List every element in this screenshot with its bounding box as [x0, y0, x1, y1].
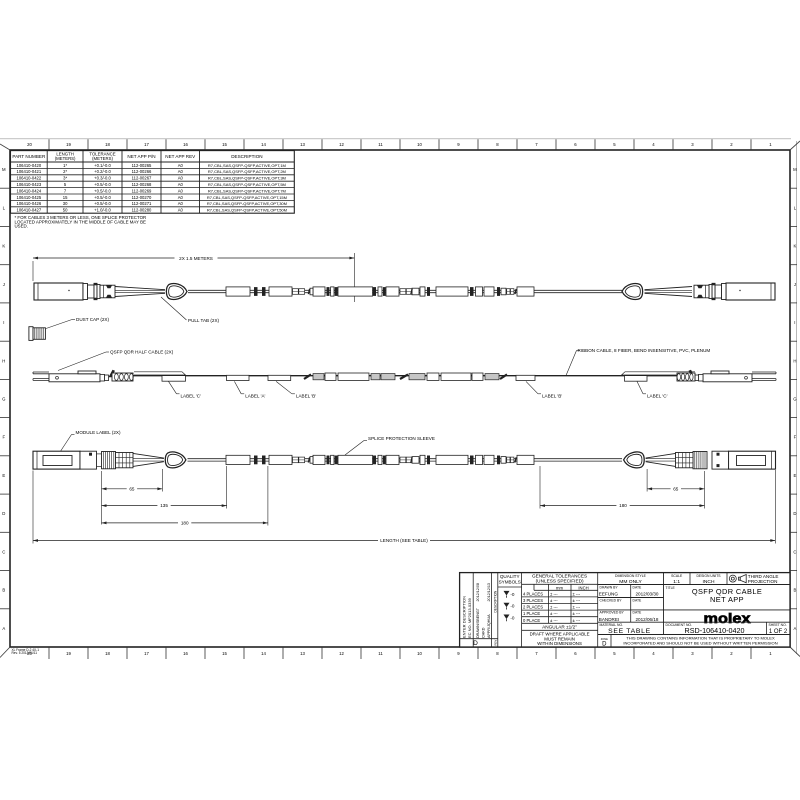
svg-text:Rev. 5 2012/01/11: Rev. 5 2012/01/11 [12, 651, 38, 655]
svg-text:WITHIN DIMENSIONS: WITHIN DIMENSIONS [537, 641, 582, 646]
svg-text:50: 50 [63, 208, 68, 213]
svg-text:NET APP P/N: NET APP P/N [127, 154, 155, 159]
svg-text:12: 12 [339, 651, 344, 656]
svg-text:19: 19 [66, 142, 71, 147]
svg-text:± ---: ± --- [550, 591, 558, 596]
svg-text:18: 18 [105, 651, 110, 656]
svg-text:MATERIAL NO.: MATERIAL NO. [600, 623, 624, 627]
svg-text:± ---: ± --- [573, 598, 581, 603]
svg-text:NET APP: NET APP [710, 595, 744, 604]
svg-text:QSFP QDR HALF CABLE (2X): QSFP QDR HALF CABLE (2X) [110, 350, 174, 355]
svg-text:2012/06/18: 2012/06/18 [636, 617, 659, 622]
svg-text:15: 15 [63, 195, 68, 200]
svg-text:DESIGN UNITS: DESIGN UNITS [696, 574, 721, 578]
svg-text:112-00269: 112-00269 [132, 188, 152, 193]
svg-text:± ---: ± --- [573, 618, 581, 623]
svg-text:11: 11 [378, 142, 383, 147]
svg-text:K: K [793, 244, 796, 249]
svg-text:2012/03/30: 2012/03/30 [636, 592, 659, 597]
svg-text:SCALE: SCALE [671, 574, 683, 578]
svg-text:J: J [794, 282, 796, 287]
svg-text:MODULE LABEL (2X): MODULE LABEL (2X) [76, 430, 121, 435]
svg-text:DATE: DATE [633, 598, 643, 602]
svg-text:D: D [602, 641, 607, 647]
svg-text:135: 135 [160, 503, 168, 508]
svg-text:ZONE: ZONE [601, 637, 608, 641]
svg-text:10: 10 [417, 142, 422, 147]
svg-text:MM ONLY: MM ONLY [619, 579, 642, 585]
svg-text:D: D [2, 511, 5, 516]
svg-text:106410-0426: 106410-0426 [17, 201, 42, 206]
svg-text:DESCRIPTION: DESCRIPTION [231, 154, 262, 159]
svg-text:1*: 1* [63, 163, 67, 168]
svg-text:-0: -0 [510, 604, 515, 609]
svg-text:11: 11 [378, 651, 383, 656]
svg-text:106410-0423: 106410-0423 [17, 182, 42, 187]
svg-text:17: 17 [144, 651, 149, 656]
svg-text:LABEL 'B': LABEL 'B' [542, 393, 562, 398]
svg-text:DRAWN BY: DRAWN BY [600, 585, 619, 589]
svg-text:SPLICE PROTECTION SLEEVE: SPLICE PROTECTION SLEEVE [368, 436, 435, 441]
svg-text:106410-0421: 106410-0421 [17, 169, 42, 174]
svg-text:R7,CBL,SAS,QSFP-QSFP,ACTIVE,OP: R7,CBL,SAS,QSFP-QSFP,ACTIVE,OPT,2M [208, 169, 286, 174]
svg-text:C: C [793, 549, 796, 554]
svg-text:3 PLACES: 3 PLACES [523, 598, 543, 603]
svg-text:13: 13 [300, 651, 305, 656]
svg-text:M: M [793, 167, 797, 172]
svg-text:SHEET NO.: SHEET NO. [769, 623, 787, 627]
svg-text:ANGULAR ±1/2°: ANGULAR ±1/2° [542, 625, 577, 630]
svg-text:(UNLESS SPECIFIED): (UNLESS SPECIFIED) [536, 579, 584, 584]
svg-text:R7,CBL,SAS,QSFP-QSFP,ACTIVE,OP: R7,CBL,SAS,QSFP-QSFP,ACTIVE,OPT,7M [208, 188, 286, 193]
svg-text:A0: A0 [178, 208, 184, 213]
svg-text:14: 14 [261, 142, 266, 147]
svg-text:DRAWN/SBENGT: DRAWN/SBENGT [476, 607, 480, 638]
svg-text:APPROVED BY: APPROVED BY [600, 611, 625, 615]
svg-text:112-00280: 112-00280 [132, 208, 152, 213]
svg-text:INCH: INCH [703, 579, 715, 585]
svg-text:14: 14 [261, 651, 266, 656]
svg-text:65: 65 [129, 486, 135, 491]
svg-text:+0.3/-0.0: +0.3/-0.0 [94, 176, 111, 181]
svg-text:A0: A0 [178, 201, 184, 206]
svg-text:(METERS): (METERS) [92, 156, 113, 161]
svg-text:± ---: ± --- [573, 611, 581, 616]
svg-text:+0.1/-0.0: +0.1/-0.0 [94, 163, 111, 168]
svg-text:LABEL 'B': LABEL 'B' [296, 393, 316, 398]
svg-text:112-00268: 112-00268 [132, 182, 152, 187]
svg-text:LABEL 'C': LABEL 'C' [647, 393, 668, 398]
svg-text:SEE TABLE: SEE TABLE [608, 628, 651, 635]
svg-text:2*: 2* [63, 169, 67, 174]
svg-text:16: 16 [183, 651, 188, 656]
svg-text:K: K [2, 244, 5, 249]
svg-text:molex: molex [704, 611, 751, 626]
svg-text:DESCRIPTION: DESCRIPTION [493, 590, 497, 612]
svg-text:E: E [793, 473, 796, 478]
svg-text:1 OF 2: 1 OF 2 [769, 629, 788, 635]
svg-text:DATE: DATE [633, 585, 643, 589]
svg-text:+0.2/-0.0: +0.2/-0.0 [94, 169, 111, 174]
svg-text:106410-0425: 106410-0425 [17, 195, 42, 200]
svg-text:mm: mm [556, 585, 563, 590]
svg-text:± ---: ± --- [550, 605, 558, 610]
svg-text:106410-0424: 106410-0424 [17, 188, 42, 193]
svg-text:LABEL 'A': LABEL 'A' [245, 393, 265, 398]
svg-text:R7,CBL,SAS,QSFP-QSFP,ACTIVE,OP: R7,CBL,SAS,QSFP-QSFP,ACTIVE,OPT,50M [207, 208, 287, 213]
svg-text:DUST CAP (2X): DUST CAP (2X) [76, 317, 109, 322]
svg-text:20: 20 [27, 142, 32, 147]
svg-text:I: I [794, 320, 795, 325]
svg-text:EEFUNG: EEFUNG [599, 592, 619, 597]
svg-text:1:1: 1:1 [673, 579, 680, 585]
svg-text:R7,CBL,SAS,QSFP-QSFP,ACTIVE,OP: R7,CBL,SAS,QSFP-QSFP,ACTIVE,OPT,1M [208, 163, 286, 168]
svg-text:LOCATED APPROXIMATELY IN THE M: LOCATED APPROXIMATELY IN THE MIDDLE OF C… [15, 219, 146, 224]
svg-text:D: D [793, 511, 796, 516]
svg-text:19: 19 [66, 651, 71, 656]
svg-text:+0.5/-0.0: +0.5/-0.0 [94, 195, 111, 200]
svg-text:-0: -0 [510, 615, 515, 620]
svg-text:A0: A0 [178, 163, 184, 168]
svg-text:F: F [794, 435, 797, 440]
svg-text:NET APP REV: NET APP REV [165, 154, 196, 159]
svg-text:LENGTH (SEE TABLE): LENGTH (SEE TABLE) [380, 538, 428, 543]
svg-text:15: 15 [222, 142, 227, 147]
svg-text:R7,CBL,SAS,QSFP-QSFP,ACTIVE,OP: R7,CBL,SAS,QSFP-QSFP,ACTIVE,OPT,5M [208, 182, 286, 187]
svg-text:EC NO. MF2013-0339: EC NO. MF2013-0339 [467, 597, 472, 638]
svg-text:± ---: ± --- [550, 611, 558, 616]
svg-text:PART NUMBER: PART NUMBER [12, 154, 46, 159]
svg-text:R7,CBL,SAS,QSFP-QSFP,ACTIVE,OP: R7,CBL,SAS,QSFP-QSFP,ACTIVE,OPT,30M [207, 201, 287, 206]
svg-text:QUALITY: QUALITY [500, 574, 520, 579]
svg-text:J: J [3, 282, 5, 287]
svg-text:2012/12/08: 2012/12/08 [476, 583, 480, 601]
svg-text:SYMBOLS: SYMBOLS [499, 580, 521, 585]
svg-text:3*: 3* [63, 176, 67, 181]
svg-text:0 PLACE: 0 PLACE [523, 618, 540, 623]
svg-text:12: 12 [339, 142, 344, 147]
svg-text:± ---: ± --- [550, 598, 558, 603]
svg-text:BANDREI: BANDREI [599, 617, 619, 622]
svg-text:180: 180 [619, 503, 627, 508]
svg-text:180: 180 [181, 521, 189, 526]
svg-text:2 PLACES: 2 PLACES [523, 605, 543, 610]
svg-text:PULL TAB (2X): PULL TAB (2X) [188, 318, 220, 323]
svg-text:B: B [793, 588, 796, 593]
svg-text:REV: REV [494, 640, 498, 646]
svg-text:R7,CBL,SAS,QSFP-QSFP,ACTIVE,OP: R7,CBL,SAS,QSFP-QSFP,ACTIVE,OPT,3M [208, 176, 286, 181]
svg-text:D: D [473, 640, 478, 647]
svg-text:+1.0/-0.0: +1.0/-0.0 [94, 208, 111, 213]
svg-text:30: 30 [63, 201, 68, 206]
svg-text:10: 10 [417, 651, 422, 656]
svg-text:A0: A0 [178, 169, 184, 174]
svg-text:A0: A0 [178, 182, 184, 187]
svg-text:2X 1.5 METERS: 2X 1.5 METERS [179, 256, 213, 261]
svg-text:C: C [2, 549, 5, 554]
svg-text:112-00271: 112-00271 [132, 201, 152, 206]
svg-text:106410-0427: 106410-0427 [17, 208, 42, 213]
svg-text:17: 17 [144, 142, 149, 147]
svg-text:A: A [2, 626, 5, 631]
svg-text:1 PLACE: 1 PLACE [523, 611, 540, 616]
svg-text:4 PLACES: 4 PLACES [523, 591, 543, 596]
svg-text:DIMENSION STYLE: DIMENSION STYLE [615, 574, 647, 578]
svg-text:A0: A0 [178, 176, 184, 181]
svg-text:B: B [2, 588, 5, 593]
svg-text:A: A [793, 626, 796, 631]
svg-text:PROJECTION: PROJECTION [748, 579, 778, 584]
svg-text:INCH: INCH [578, 585, 588, 590]
svg-text:13: 13 [300, 142, 305, 147]
svg-text:18: 18 [105, 142, 110, 147]
svg-text:INCORPORATED AND SHOULD NOT BE: INCORPORATED AND SHOULD NOT BE USED WITH… [623, 640, 777, 645]
svg-text:TITLE: TITLE [666, 586, 676, 590]
svg-text:M: M [2, 167, 6, 172]
svg-text:± ---: ± --- [573, 591, 581, 596]
svg-text:RIBBON CABLE, 8 FIBER, BEND IN: RIBBON CABLE, 8 FIBER, BEND INSENSITIVE,… [578, 348, 711, 353]
svg-text:E: E [2, 473, 5, 478]
svg-text:± ---: ± --- [550, 618, 558, 623]
svg-text:106410-0420: 106410-0420 [17, 163, 42, 168]
svg-text:65: 65 [673, 486, 679, 491]
svg-text:RSD-106410-0420: RSD-106410-0420 [685, 626, 745, 635]
svg-text:I: I [3, 320, 4, 325]
svg-text:+0.5/-0.0: +0.5/-0.0 [94, 188, 111, 193]
svg-text:R7,CBL,SAS,QSFP-QSFP,ACTIVE,OP: R7,CBL,SAS,QSFP-QSFP,ACTIVE,OPT,15M [207, 195, 287, 200]
svg-text:A0: A0 [178, 195, 184, 200]
svg-text:112-00265: 112-00265 [132, 163, 152, 168]
svg-text:DATE: DATE [633, 611, 643, 615]
svg-text:2012/12/13: 2012/12/13 [487, 583, 491, 601]
svg-text:F: F [2, 435, 5, 440]
svg-text:+0.5/-0.0: +0.5/-0.0 [94, 182, 111, 187]
svg-text:APPR/JQHUA: APPR/JQHUA [487, 614, 491, 638]
svg-text:16: 16 [183, 142, 188, 147]
svg-text:-0: -0 [510, 592, 515, 597]
svg-text:(METERS): (METERS) [55, 156, 76, 161]
svg-text:15: 15 [222, 651, 227, 656]
svg-text:H: H [2, 358, 5, 363]
svg-text:112-00267: 112-00267 [132, 176, 152, 181]
svg-text:USED.: USED. [15, 224, 28, 229]
svg-text:106410-0422: 106410-0422 [17, 176, 42, 181]
svg-text:H: H [793, 358, 796, 363]
svg-text:112-00270: 112-00270 [132, 195, 152, 200]
svg-text:LABEL 'C': LABEL 'C' [181, 393, 202, 398]
svg-text:CHECKED BY: CHECKED BY [600, 598, 623, 602]
svg-text:± ---: ± --- [573, 605, 581, 610]
svg-text:A0: A0 [178, 188, 184, 193]
svg-text:+0.5/-0.0: +0.5/-0.0 [94, 201, 111, 206]
svg-text:CHKD: CHKD [481, 627, 485, 638]
svg-text:112-00266: 112-00266 [132, 169, 152, 174]
